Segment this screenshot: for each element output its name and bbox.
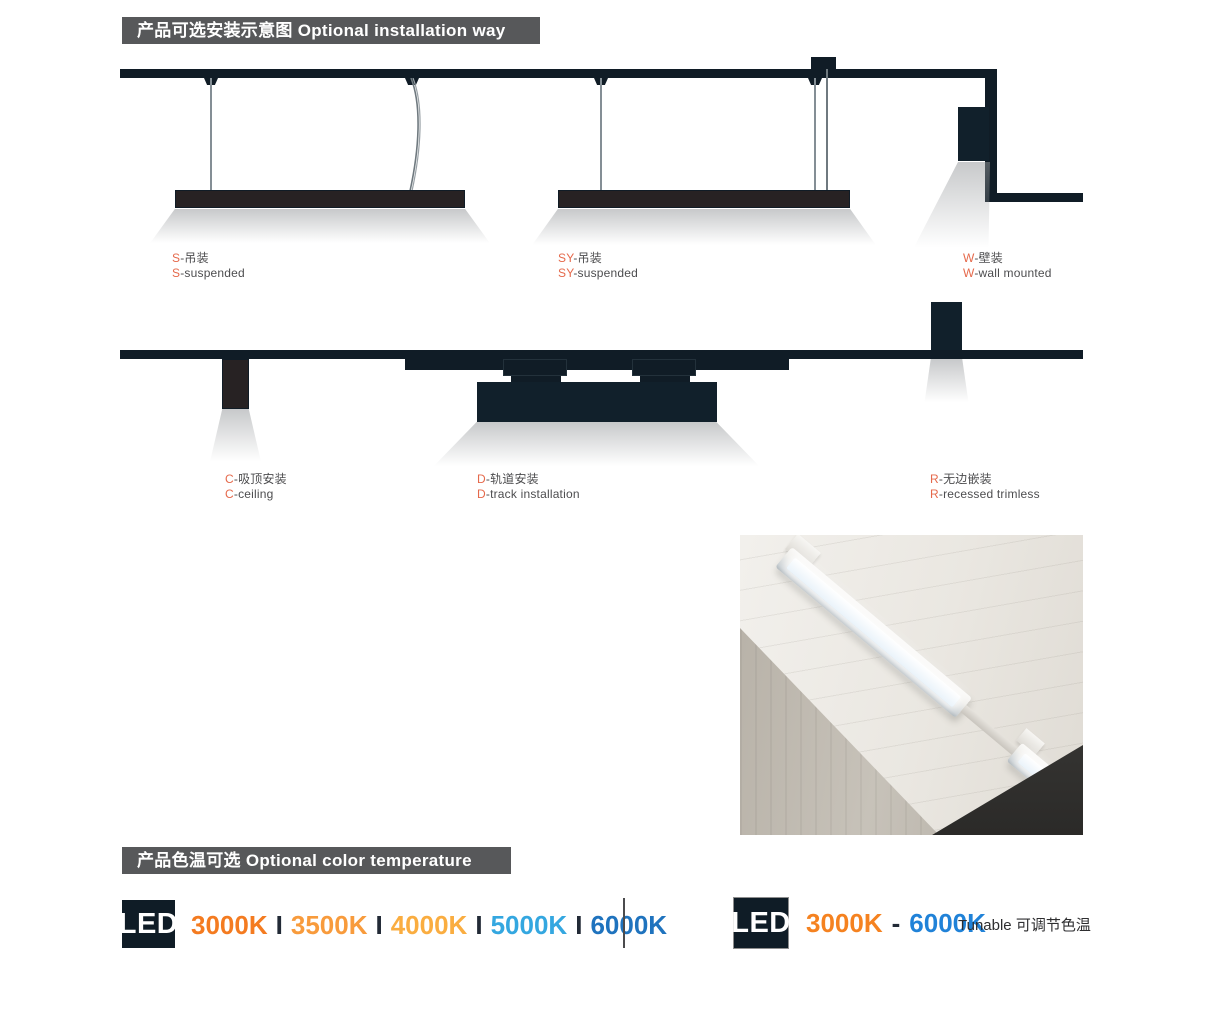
ceiling-line-bottom: [120, 350, 1083, 359]
label-s-line-zh: S-吊装: [172, 251, 245, 266]
label-s-suspended: S-吊装 S-suspended: [172, 251, 245, 281]
label-c-line-zh: C-吸顶安装: [225, 472, 287, 487]
ceiling-line-top: [120, 69, 997, 78]
cct-tunable-dash: -: [892, 908, 901, 938]
cct-fixed-values: 3000KI3500KI4000KI5000KI6000K: [191, 910, 667, 941]
label-c-zh: -吸顶安装: [234, 472, 287, 486]
r-light-cone: [924, 359, 969, 406]
cct-separator-icon: I: [575, 910, 582, 940]
label-w-zh: -壁装: [974, 251, 1003, 265]
wall-bottom-ledge: [985, 193, 1083, 202]
cct-tunable-from: 3000K: [806, 908, 883, 938]
cct-separator-icon: I: [276, 910, 283, 940]
label-r-prefix-en: R: [930, 487, 939, 501]
led-badge-fixed-text: LED: [119, 908, 179, 941]
label-w-prefix-en: W: [963, 266, 974, 280]
led-badge-tunable-text: LED: [731, 907, 791, 940]
sy-suspension-rod-left: [600, 78, 602, 190]
label-sy-line-zh: SY-吊装: [558, 251, 638, 266]
sy-suspension-rod-right: [814, 78, 816, 190]
label-r-line-zh: R-无边嵌装: [930, 472, 1040, 487]
cct-separator-icon: I: [475, 910, 482, 940]
cct-tunable-note-text: Tunable 可调节色温: [958, 917, 1091, 934]
label-d-track: D-轨道安装 D-track installation: [477, 472, 580, 502]
label-d-prefix: D: [477, 472, 486, 486]
catalog-page: 产品可选安装示意图 Optional installation way S-吊装…: [0, 0, 1206, 1014]
c-light-cone: [209, 409, 262, 466]
label-c-ceiling: C-吸顶安装 C-ceiling: [225, 472, 287, 502]
d-light-cone: [430, 422, 763, 470]
label-w-prefix: W: [963, 251, 974, 265]
sy-luminaire-bar: [558, 190, 850, 208]
label-w-wall-mounted: W-壁装 W-wall mounted: [963, 251, 1052, 281]
section-header-installation: 产品可选安装示意图 Optional installation way: [122, 17, 540, 44]
label-r-line-en: R-recessed trimless: [930, 487, 1040, 502]
cct-separator-icon: I: [375, 910, 382, 940]
d-luminaire-box: [477, 382, 717, 422]
section-header-color-temperature: 产品色温可选 Optional color temperature: [122, 847, 511, 874]
cct-section-divider: [623, 898, 625, 948]
r-recessed-box: [931, 302, 962, 350]
w-luminaire-box: [958, 107, 989, 161]
cct-option-4000k: 4000K: [391, 910, 468, 940]
label-w-line-en: W-wall mounted: [963, 266, 1052, 281]
section-header-color-temperature-text: 产品色温可选 Optional color temperature: [137, 851, 472, 870]
product-photo: [740, 535, 1083, 835]
sy-power-wire: [826, 69, 828, 190]
d-track-adapter-right: [632, 359, 696, 376]
label-c-prefix: C: [225, 472, 234, 486]
label-sy-zh: -吊装: [573, 251, 602, 265]
label-w-en: -wall mounted: [974, 266, 1051, 280]
label-c-en: -ceiling: [234, 487, 274, 501]
label-d-zh: -轨道安装: [486, 472, 539, 486]
s-suspension-cable: [400, 78, 426, 192]
cct-option-3500k: 3500K: [291, 910, 368, 940]
s-luminaire-bar: [175, 190, 465, 208]
label-c-prefix-en: C: [225, 487, 234, 501]
label-d-prefix-en: D: [477, 487, 486, 501]
label-sy-suspended: SY-吊装 SY-suspended: [558, 251, 638, 281]
label-c-line-en: C-ceiling: [225, 487, 287, 502]
cct-option-3000k: 3000K: [191, 910, 268, 940]
section-header-installation-text: 产品可选安装示意图 Optional installation way: [137, 21, 505, 40]
c-luminaire-box: [222, 359, 249, 409]
led-badge-tunable: LED: [733, 897, 789, 949]
led-badge-fixed: LED: [122, 900, 175, 948]
label-s-zh: -吊装: [180, 251, 209, 265]
label-r-en: -recessed trimless: [939, 487, 1040, 501]
label-s-en: -suspended: [180, 266, 245, 280]
cct-tunable-note: Tunable 可调节色温: [958, 914, 1091, 935]
label-s-prefix-en: S: [172, 266, 180, 280]
d-track-rail: [405, 359, 789, 370]
sy-junction-box: [811, 57, 836, 69]
label-r-recessed: R-无边嵌装 R-recessed trimless: [930, 472, 1040, 502]
sy-light-cone: [530, 209, 878, 248]
label-sy-prefix: SY: [558, 251, 573, 265]
cct-option-5000k: 5000K: [491, 910, 568, 940]
w-light-cone: [910, 162, 990, 255]
label-sy-line-en: SY-suspended: [558, 266, 638, 281]
label-r-zh: -无边嵌装: [939, 472, 992, 486]
label-w-line-zh: W-壁装: [963, 251, 1052, 266]
label-s-prefix: S: [172, 251, 180, 265]
label-sy-en: -suspended: [573, 266, 638, 280]
cct-option-6000k: 6000K: [590, 910, 667, 940]
s-suspension-rod-left: [210, 78, 212, 190]
label-d-line-zh: D-轨道安装: [477, 472, 580, 487]
label-d-en: -track installation: [486, 487, 580, 501]
label-r-prefix: R: [930, 472, 939, 486]
label-d-line-en: D-track installation: [477, 487, 580, 502]
label-s-line-en: S-suspended: [172, 266, 245, 281]
d-track-adapter-left: [503, 359, 567, 376]
label-sy-prefix-en: SY: [558, 266, 573, 280]
s-light-cone: [148, 209, 492, 246]
